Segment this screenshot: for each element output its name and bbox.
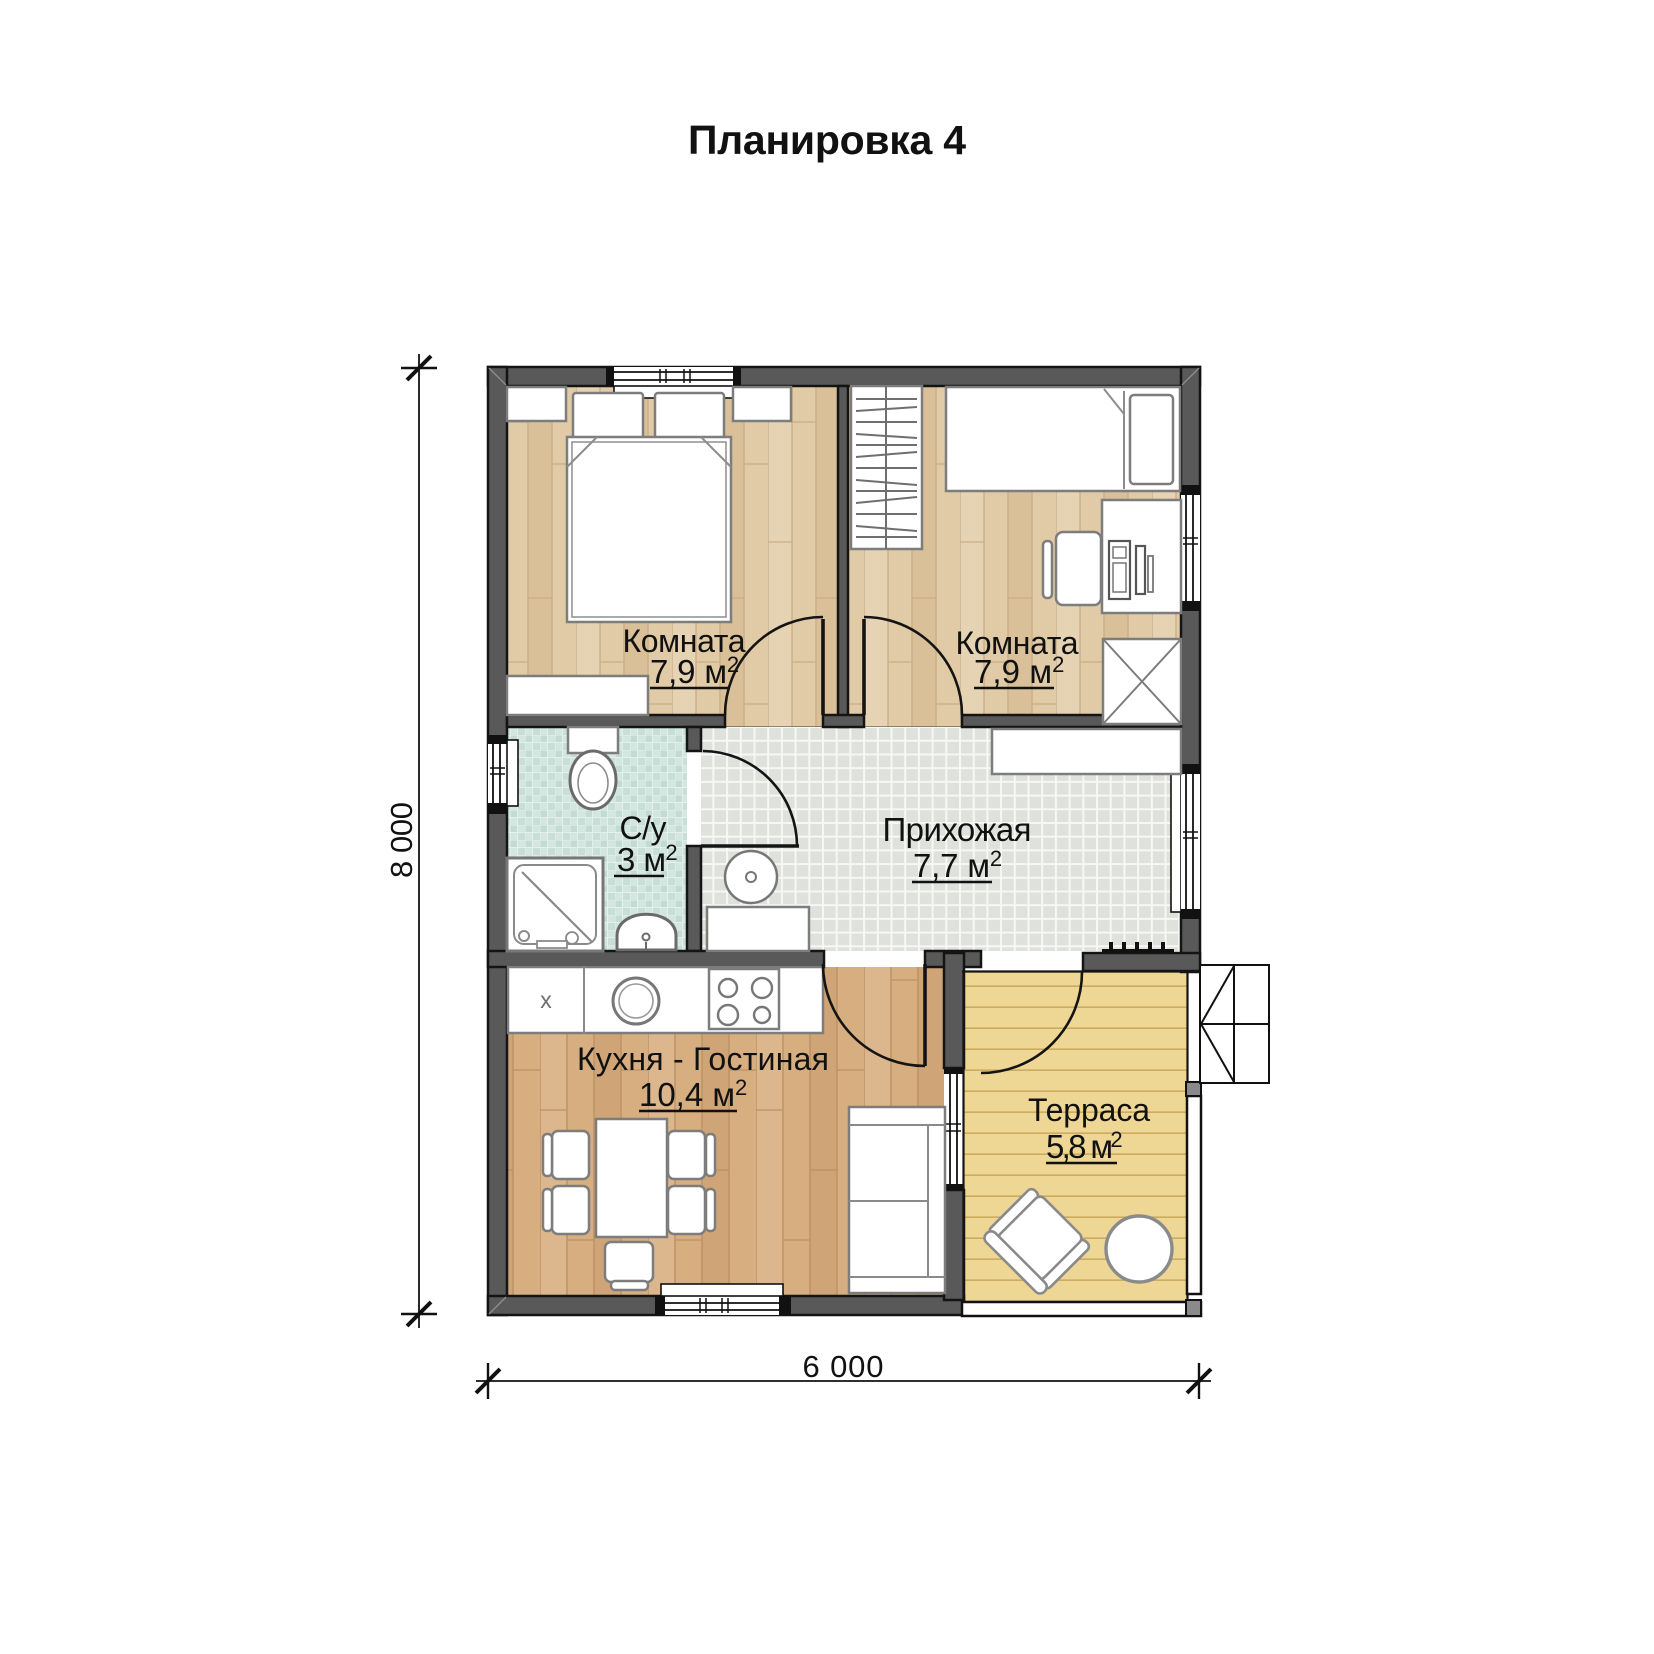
svg-text:x: x [540,987,552,1013]
svg-text:10,4 м2: 10,4 м2 [639,1075,747,1113]
svg-text:6 000: 6 000 [803,1349,884,1384]
svg-text:7,9 м2: 7,9 м2 [974,652,1064,690]
svg-text:5,8 м2: 5,8 м2 [1046,1127,1123,1165]
svg-text:Кухня - Гостиная: Кухня - Гостиная [577,1041,829,1077]
svg-text:7,7 м2: 7,7 м2 [913,846,1002,884]
svg-text:Прихожая: Прихожая [883,811,1032,848]
svg-text:8 000: 8 000 [384,802,419,878]
svg-text:Планировка 4: Планировка 4 [688,117,966,163]
svg-text:Терраса: Терраса [1028,1092,1150,1128]
svg-text:7,9 м2: 7,9 м2 [650,652,739,690]
